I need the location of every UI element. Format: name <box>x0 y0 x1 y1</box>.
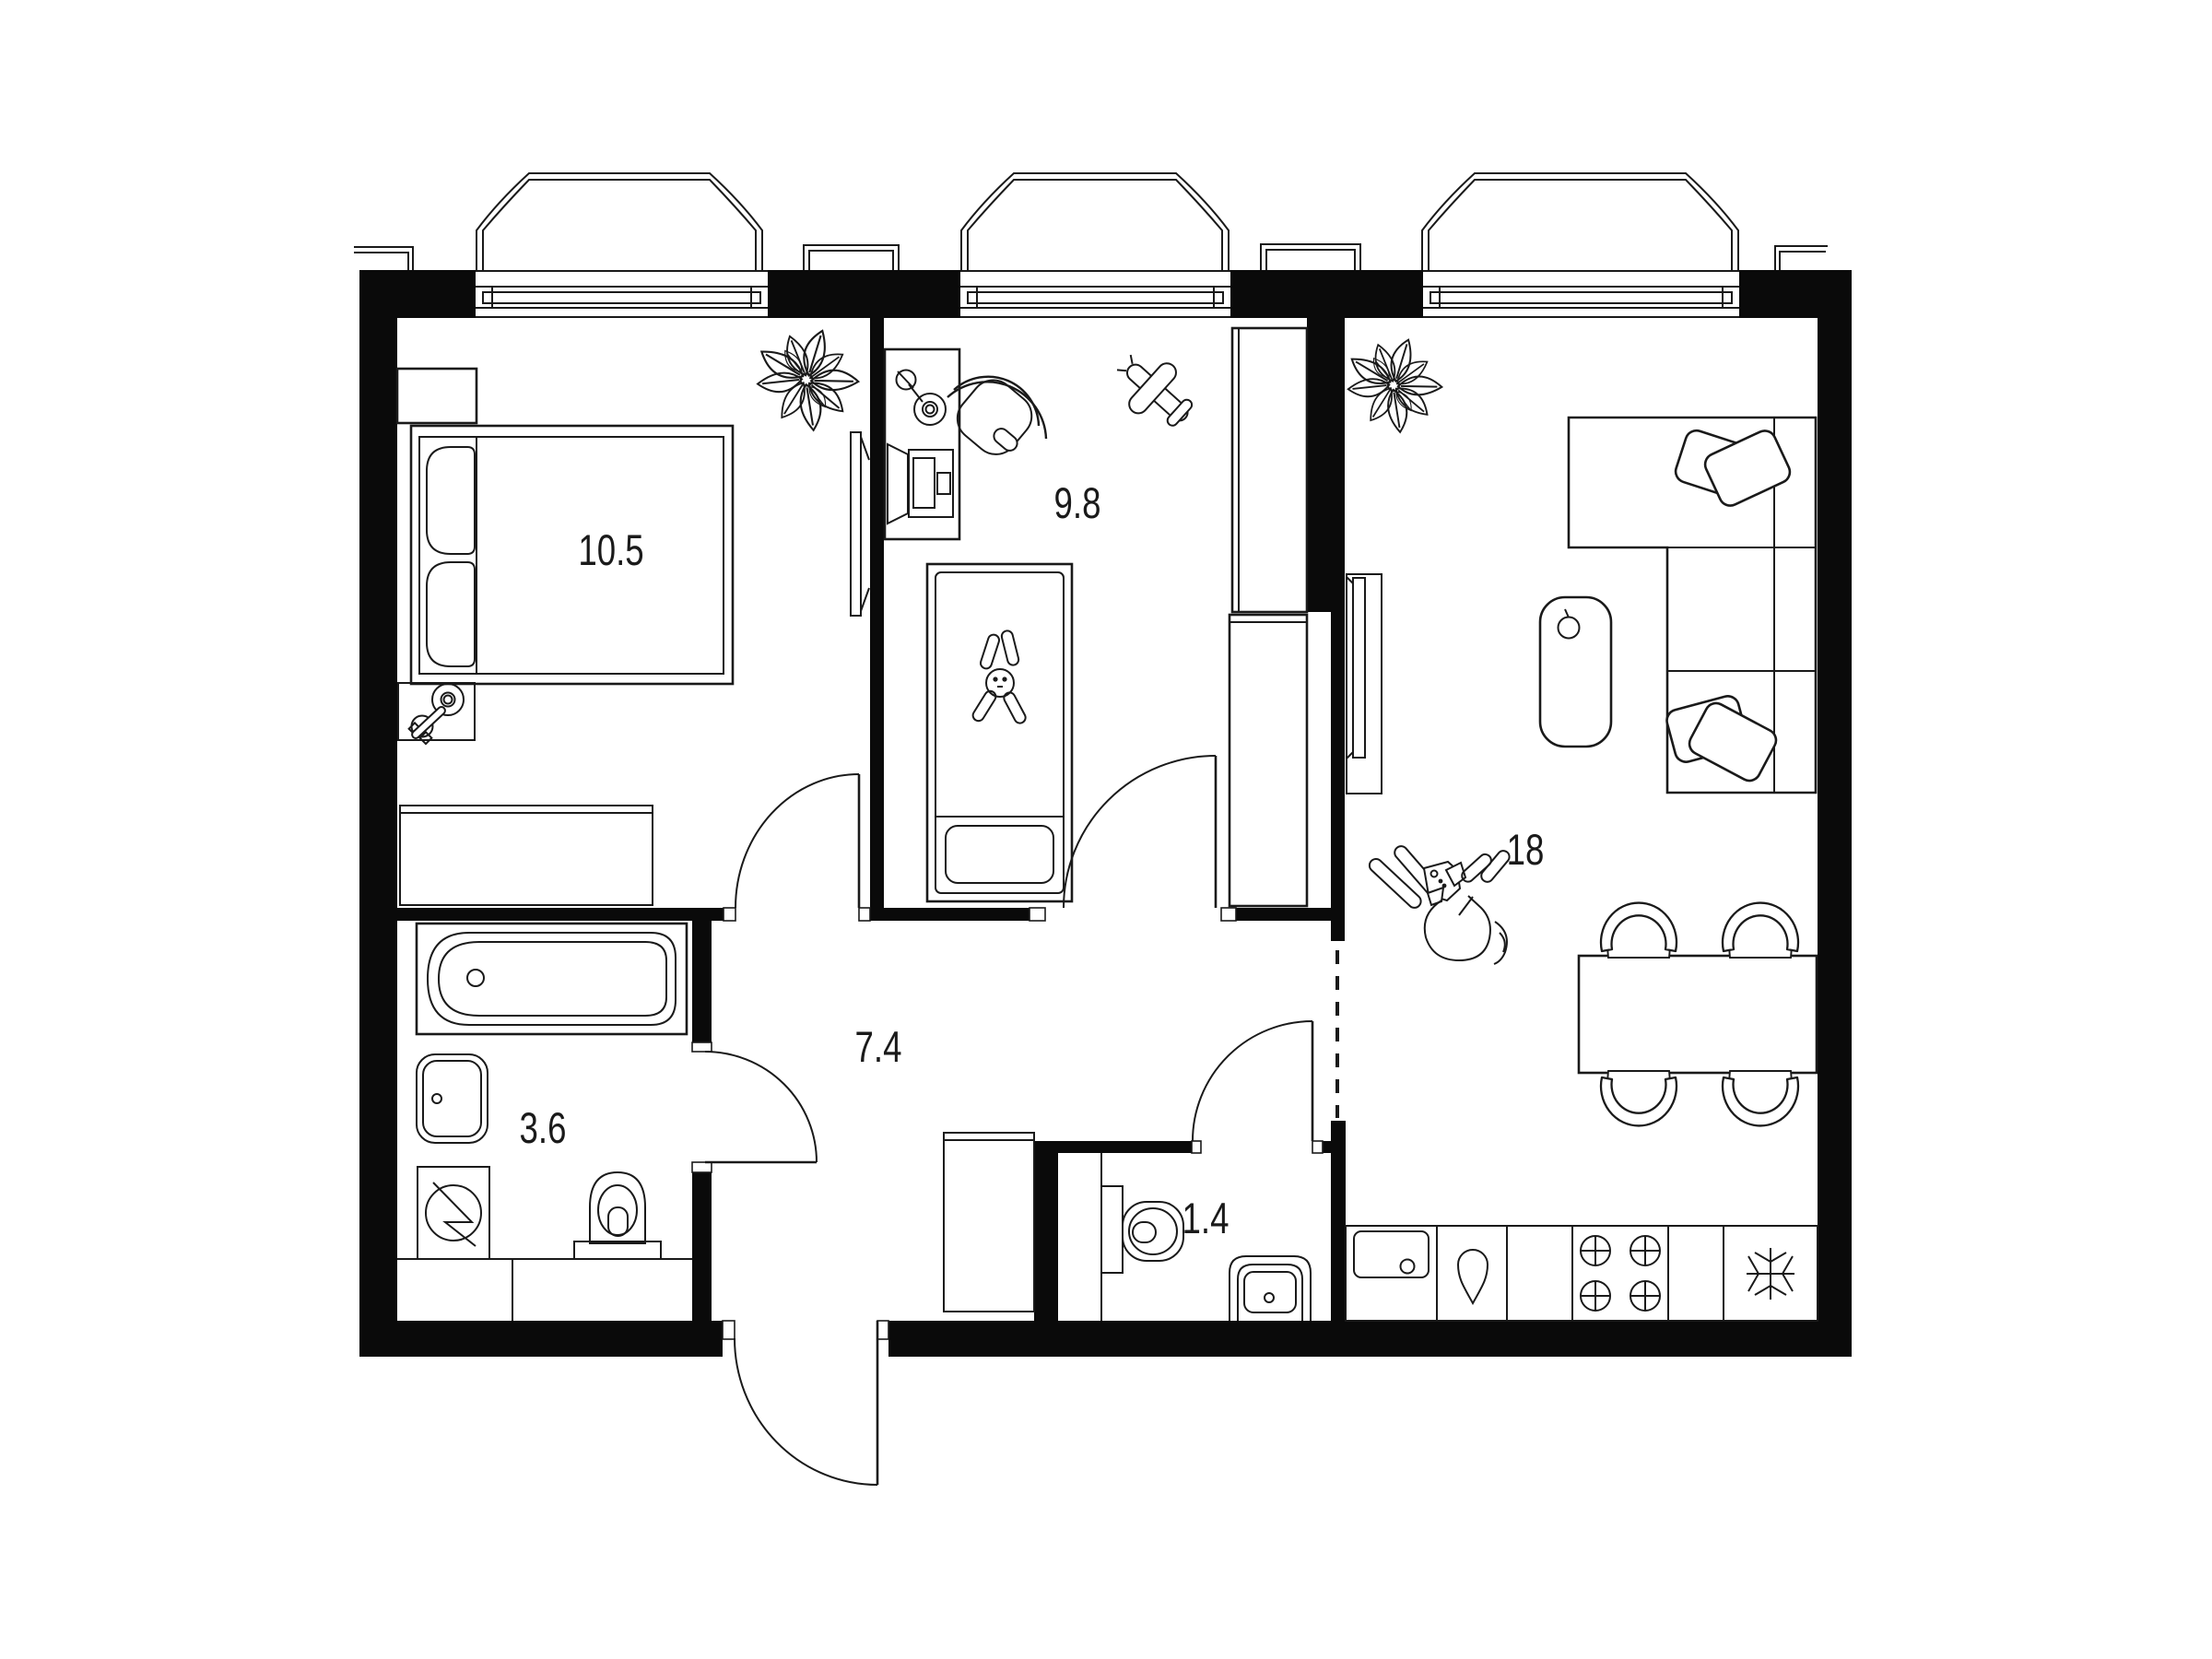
svg-text:18: 18 <box>1507 826 1545 874</box>
svg-text:3.6: 3.6 <box>520 1104 567 1152</box>
svg-text:9.8: 9.8 <box>1054 479 1101 527</box>
svg-text:7.4: 7.4 <box>855 1023 902 1071</box>
svg-text:1.4: 1.4 <box>1182 1194 1230 1242</box>
svg-text:10.5: 10.5 <box>578 526 643 574</box>
